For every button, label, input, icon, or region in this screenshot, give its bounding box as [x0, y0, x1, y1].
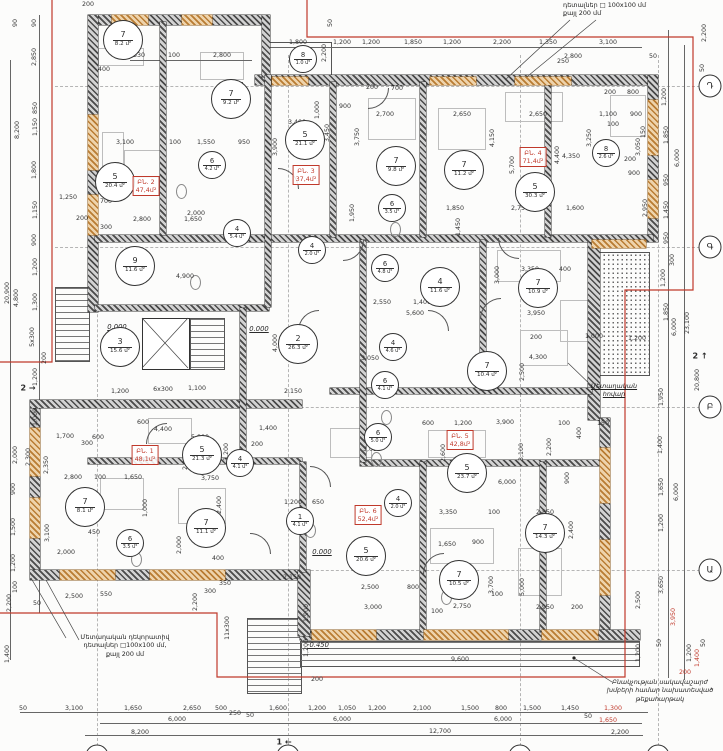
dimension-label: 800	[627, 90, 639, 96]
room-label: 520.4 մ²	[95, 162, 135, 202]
dimension-label: 900	[472, 540, 484, 546]
room-area: 9.2 մ²	[221, 99, 241, 107]
dimension-label: 850	[33, 102, 39, 114]
room-number: 7	[484, 362, 489, 371]
wall-brick-segment	[542, 630, 598, 640]
dimension-label: 1,500	[11, 518, 17, 536]
annotation-text: Բնակչության սակավաշարժխմբերի համար նախատ…	[598, 678, 722, 703]
dimension-label: 100	[168, 53, 180, 59]
room-number: 6	[383, 378, 387, 385]
dimension-label: 1,200	[661, 269, 667, 287]
dimension-label: 1,100	[599, 112, 617, 118]
room-area: 3.5 մ²	[383, 208, 402, 216]
room-label: 42.0 մ²	[298, 236, 326, 264]
dimension-label: 1,950	[350, 204, 356, 222]
room-label: 710.4 մ²	[467, 351, 507, 391]
dimension-label: 2,200	[611, 730, 629, 736]
room-area: 11.6 մ²	[123, 266, 147, 274]
dimension-label: 600	[422, 421, 434, 427]
leader-line	[505, 20, 570, 80]
dimension-label: 50	[246, 713, 254, 719]
room-number: 4	[238, 456, 242, 463]
dimension-label: 500	[215, 706, 227, 712]
dimension-label: 1,450	[664, 201, 670, 219]
dimension-label: 2,650	[453, 112, 471, 118]
dimension-label: 1,650	[184, 217, 202, 223]
dimension-label: 100	[94, 475, 106, 481]
dimension-label: 950	[664, 174, 670, 186]
dimension-label: 5,700	[510, 156, 516, 174]
apartment-label: ԲՆ. 542,8մ²	[447, 430, 474, 450]
dimension-label: 350	[219, 581, 231, 587]
room-label: 711.1 մ²	[186, 508, 226, 548]
dimension-label: 950	[664, 232, 670, 244]
dimension-label: 90	[13, 19, 19, 27]
dimension-label: 1,550	[197, 140, 215, 146]
room-number: 7	[461, 161, 466, 170]
dimension-label: 1,200	[454, 421, 472, 427]
room-number: 6	[376, 430, 380, 437]
wall-brick-segment	[150, 570, 225, 580]
dimension-label: 50	[33, 601, 41, 607]
dimension-label: 1,000	[33, 408, 39, 426]
dimension-label: 2,350	[44, 456, 50, 474]
dimension-label: 3,750	[201, 476, 219, 482]
room-label: 81.0 մ²	[289, 45, 317, 73]
dimension-label: 2,200	[493, 40, 511, 46]
dimension-label: 6,000	[168, 717, 186, 723]
room-label: 710.5 մ²	[439, 560, 479, 600]
dimension-label: 700	[391, 86, 403, 92]
dimension-label: 1,200	[333, 40, 351, 46]
room-label: 78.1 մ²	[65, 487, 105, 527]
room-number: 6	[210, 158, 214, 165]
dimension-label: 1,050	[338, 706, 356, 712]
dimension-label: 3,100	[45, 524, 51, 542]
dimension-label: 2,200	[547, 438, 553, 456]
dimension-label: 50	[657, 639, 663, 647]
dimension-label: 900	[339, 104, 351, 110]
dimension-label: 3,900	[273, 138, 279, 156]
dimension-label: 1,200	[11, 554, 17, 572]
dimension-label: 6,000	[675, 149, 681, 167]
room-number: 7	[82, 498, 87, 507]
room-label: 64.8 մ²	[371, 254, 399, 282]
room-area: 14.3 մ²	[533, 533, 557, 541]
apartment-label: ԲՆ. 148,1մ²	[132, 445, 159, 465]
dimension-label: 1,150	[33, 118, 39, 136]
leader-dot	[572, 656, 575, 659]
dimension-label: 1,200	[636, 644, 642, 662]
apartment-label: ԲՆ. 652,4մ²	[355, 505, 382, 525]
dimension-label: 3,000	[364, 605, 382, 611]
room-number: 8	[301, 52, 305, 59]
dimension-label: 50	[584, 714, 592, 720]
dimension-label: 100	[558, 421, 570, 427]
room-area: 8.2 մ²	[113, 40, 133, 48]
dimension-label: 1,950	[659, 388, 665, 406]
dimension-label: 11x300	[225, 616, 231, 640]
dimension-label: 1,000	[143, 499, 149, 517]
wall-brick-segment	[272, 77, 308, 85]
dimension-label: 1,850	[664, 303, 670, 321]
room-label: 520.6 մ²	[346, 536, 386, 576]
dimension-label: 1,850	[446, 206, 464, 212]
dimension-label: 950	[238, 140, 250, 146]
dimension-label: 1,500	[461, 706, 479, 712]
dimension-label: 1,400	[695, 649, 701, 667]
dimension-label: 8,200	[15, 121, 21, 139]
room-area: 10.5 մ²	[447, 580, 471, 588]
dimension-label: 3,000	[495, 266, 501, 284]
dimension-label: 2,200	[322, 44, 328, 62]
dimension-label: 50	[700, 64, 706, 72]
dimension-label: 2,800	[133, 217, 151, 223]
dimension-label: 1,650	[659, 478, 665, 496]
room-label: 315.6 մ²	[100, 327, 140, 367]
dimension-label: 4,300	[529, 355, 547, 361]
room-number: 6	[383, 261, 387, 268]
dimension-label: 650	[312, 500, 324, 506]
dimension-label: 6,000	[333, 717, 351, 723]
room-label: 42.0 մ²	[384, 489, 412, 517]
dimension-label: 3,100	[599, 40, 617, 46]
room-number: 7	[203, 519, 208, 528]
leader-line	[46, 580, 79, 640]
dimension-label: 4,350	[562, 154, 580, 160]
leader-line	[31, 578, 66, 638]
dimension-label: 100	[13, 581, 19, 593]
room-area: 2.0 մ²	[389, 503, 408, 511]
dimension-label: 2,400	[569, 521, 575, 539]
room-area: 5.4 մ²	[228, 233, 247, 241]
dimension-label: 2,800	[213, 53, 231, 59]
dimension-label: 2,800	[64, 475, 82, 481]
floor-plan-drawing: 2009090502,2001,8001,2001,2001,8501,2002…	[0, 0, 723, 751]
dimension-label: 8,200	[131, 730, 149, 736]
dimension-label: 50	[649, 54, 657, 60]
room-label: 44.6 մ²	[379, 333, 407, 361]
dimension-label: 100	[431, 609, 443, 615]
dimension-label: 550	[100, 592, 112, 598]
wall-brick-segment	[60, 570, 115, 580]
dimension-label: 2,650	[183, 706, 201, 712]
dimension-label: 1,800	[32, 161, 38, 179]
leader-line	[523, 20, 596, 80]
dimension-label: 4,150	[490, 129, 496, 147]
dimension-label: 2,000	[177, 536, 183, 554]
annotation-text: դետալներ □ 100x100 մմքայլ 200 մմ	[563, 1, 715, 18]
dimension-label: 900	[628, 171, 640, 177]
dimension-label: 2,950	[643, 199, 649, 217]
dimension-label: 2,300	[26, 448, 32, 466]
dimension-label: 600	[137, 420, 149, 426]
dimension-label: 100	[491, 592, 503, 598]
room-number: 4	[396, 496, 400, 503]
dimension-label: 2,700	[376, 112, 394, 118]
annotation-text: Մետաղական դեկորատիվդետալներ □100x100 մմ,…	[60, 633, 190, 658]
room-area: 4.1 մ²	[376, 385, 395, 393]
dimension-label: 1,150	[33, 201, 39, 219]
dimension-label: 2,550	[373, 300, 391, 306]
room-area: 21.3 մ²	[190, 455, 214, 463]
room-area: 20.6 մ²	[354, 556, 378, 564]
room-label: 64.1 մ²	[371, 371, 399, 399]
dimension-label: 3,750	[355, 128, 361, 146]
room-label: 711.2 մ²	[444, 150, 484, 190]
room-label: 710.9 մ²	[518, 268, 558, 308]
dimension-label: 6,000	[498, 480, 516, 486]
room-label: 911.6 մ²	[115, 246, 155, 286]
grid-axis-circle: Դ	[699, 75, 722, 98]
dimension-label: 400	[559, 267, 571, 273]
dimension-label: 1,650	[124, 475, 142, 481]
dimension-label: 50	[19, 706, 27, 712]
room-area: 8.1 մ²	[75, 507, 95, 515]
wall-brick-segment	[312, 630, 376, 640]
dimension-label: 1,200	[33, 258, 39, 276]
dimension-label: 450	[88, 530, 100, 536]
wall-brick-segment	[592, 240, 646, 248]
section-mark: 1 ←	[276, 738, 291, 747]
section-mark: 2 ↑	[692, 352, 707, 361]
dimension-label: 800	[495, 706, 507, 712]
room-number: 9	[132, 257, 137, 266]
grid-axis-circle: Ա	[699, 559, 722, 582]
dimension-label: 3,950	[527, 311, 545, 317]
dimension-label: 200	[366, 85, 378, 91]
dimension-label: 9,600	[451, 657, 469, 663]
dimension-label: 1,400	[259, 426, 277, 432]
dimension-label: 1,400	[5, 645, 11, 663]
dimension-label: 1,200	[628, 336, 646, 342]
site-boundary-red-line	[0, 0, 52, 362]
dimension-label: 600	[92, 435, 104, 441]
dimension-label: 1,000	[585, 334, 603, 340]
dimension-label: 1,200	[111, 389, 129, 395]
dimension-label: 1,200	[308, 706, 326, 712]
room-area: 4.6 մ²	[384, 347, 403, 355]
room-number: 5	[363, 547, 368, 556]
room-number: 6	[390, 201, 394, 208]
dimension-label: 2,200	[702, 24, 708, 42]
dimension-label: 1,650	[599, 718, 617, 724]
dimension-label: 1,650	[124, 706, 142, 712]
room-label: 78.2 մ²	[103, 20, 143, 60]
dimension-label: 5x300	[30, 327, 36, 347]
dimension-label: 1,200	[284, 500, 302, 506]
room-area: 10.4 մ²	[475, 371, 499, 379]
room-area: 26.3 մ²	[286, 344, 310, 352]
dimension-label: 6x300	[153, 387, 173, 393]
dimension-label: 4,400	[154, 427, 172, 433]
dimension-label: 90	[32, 19, 38, 27]
dimension-label: 200	[530, 335, 542, 341]
dimension-label: 2,200	[7, 594, 13, 612]
room-area: 11.1 մ²	[194, 528, 218, 536]
dimension-label: 6,000	[672, 318, 678, 336]
apartment-label: ԲՆ. 247,4մ²	[133, 176, 160, 196]
dimension-label: 200	[624, 157, 636, 163]
dimension-label: 2,950	[536, 605, 554, 611]
dimension-label: 800	[407, 585, 419, 591]
dimension-label: 2,500	[636, 591, 642, 609]
dimension-label: 4,900	[176, 274, 194, 280]
room-label: 411.6 մ²	[420, 267, 460, 307]
level-mark: 0.000	[249, 325, 268, 333]
dimension-label: 20,800	[695, 369, 701, 391]
room-area: 4.2 մ²	[203, 165, 222, 173]
dimension-label: 2,000	[57, 550, 75, 556]
dimension-label: 900	[32, 234, 38, 246]
dimension-label: 1,450	[456, 218, 462, 236]
room-area: 11.6 մ²	[428, 287, 452, 295]
room-number: 5	[464, 464, 469, 473]
dimension-label: 2,500	[361, 585, 379, 591]
room-number: 4	[391, 340, 395, 347]
room-number: 6	[128, 536, 132, 543]
dimension-label: 3,100	[519, 443, 525, 461]
grid-axis-circle: Բ	[699, 396, 722, 419]
dimension-label: 1,450	[561, 706, 579, 712]
room-area: 11.2 մ²	[452, 170, 476, 178]
room-label: 44.1 մ²	[226, 449, 254, 477]
dimension-label: 2,150	[283, 575, 301, 581]
wall-brick-segment	[182, 15, 212, 25]
dimension-label: 3,900	[496, 420, 514, 426]
dimension-label: 1,650	[438, 542, 456, 548]
room-area: 30.3 մ²	[523, 192, 547, 200]
room-number: 5	[112, 173, 117, 182]
dimension-label: 3,450	[325, 124, 331, 142]
room-number: 5	[199, 446, 204, 455]
dimension-label: 1,100	[188, 386, 206, 392]
room-label: 63.5 մ²	[116, 529, 144, 557]
dimension-label: 3,950	[671, 608, 677, 626]
dimension-label: 1,200	[443, 40, 461, 46]
room-area: 4.8 մ²	[376, 268, 395, 276]
dimension-label: 5,600	[406, 311, 424, 317]
dimension-label: 3,050	[636, 138, 642, 156]
grid-axis-circle: Գ	[699, 236, 722, 259]
room-area: 4.1 մ²	[231, 463, 250, 471]
dimension-label: 200	[604, 90, 616, 96]
room-label: 523.7 մ²	[447, 453, 487, 493]
dimension-label: 200	[679, 670, 691, 676]
dimension-label: 300	[81, 441, 93, 447]
dimension-label: 1,500	[523, 706, 541, 712]
dimension-label: 200	[82, 2, 94, 8]
room-area: 9.8 մ²	[386, 166, 406, 174]
dimension-label: 150	[641, 126, 647, 138]
dimension-label: 2,650	[529, 112, 547, 118]
dimension-label: 3,650	[659, 576, 665, 594]
room-area: 1.0 մ²	[294, 59, 313, 67]
room-label: 64.2 մ²	[198, 151, 226, 179]
dimension-label: 1,200	[659, 514, 665, 532]
dimension-label: 200	[42, 352, 48, 364]
room-label: 63.5 մ²	[378, 194, 406, 222]
dimension-label: 100	[488, 510, 500, 516]
level-mark: -0.450	[307, 641, 329, 649]
room-area: 5.0 մ²	[369, 437, 388, 445]
room-number: 7	[535, 279, 540, 288]
section-mark: 2 →	[20, 384, 35, 393]
dimension-label: 1,250	[59, 195, 77, 201]
dimension-label: 1,200	[362, 40, 380, 46]
dimension-label: 900	[630, 112, 642, 118]
dimension-label: 20,900	[5, 282, 11, 304]
dimension-label: 50	[328, 19, 334, 27]
dimension-label: 2,000	[13, 446, 19, 464]
room-label: 79.8 մ²	[376, 146, 416, 186]
dimension-label: 1,200	[687, 644, 693, 662]
room-number: 7	[120, 31, 125, 40]
dimension-label: 900	[565, 472, 571, 484]
dimension-label: 6,000	[494, 717, 512, 723]
level-mark: 0.000	[312, 548, 331, 556]
dimension-label: 23,100	[685, 312, 691, 334]
wall-brick-segment	[430, 77, 476, 85]
room-number: 7	[393, 157, 398, 166]
apartment-label: ԲՆ. 471,4մ²	[520, 147, 547, 167]
dimension-label: 3,100	[116, 140, 134, 146]
dimension-label: 1,400	[658, 436, 664, 454]
room-label: 714.3 մ²	[525, 513, 565, 553]
room-number: 2	[295, 335, 300, 344]
dimension-label: 1,700	[56, 434, 74, 440]
apartment-label: ԲՆ. 337,4մ²	[293, 165, 320, 185]
dimension-label: 1,300	[604, 706, 622, 712]
room-area: 20.4 մ²	[103, 182, 127, 190]
room-area: 23.7 մ²	[455, 473, 479, 481]
wall-brick-segment	[515, 77, 571, 85]
room-number: 4	[437, 278, 442, 287]
dimension-label: 4,400	[555, 146, 561, 164]
room-area: 2.6 մ²	[597, 153, 616, 161]
room-number: 3	[117, 338, 122, 347]
room-area: 3.5 մ²	[121, 543, 140, 551]
dimension-label: 400	[577, 427, 583, 439]
wall-brick-segment	[88, 195, 98, 235]
wall-brick-segment	[88, 115, 98, 170]
room-number: 4	[235, 226, 239, 233]
room-number: 1	[298, 514, 302, 521]
room-label: 14.1 մ²	[286, 507, 314, 535]
dimension-label: 150	[597, 421, 609, 427]
room-area: 4.1 մ²	[291, 521, 310, 529]
dimension-label: 4,800	[14, 289, 20, 307]
dimension-label: 2,200	[193, 593, 199, 611]
dimension-label: 2,100	[413, 706, 431, 712]
room-number: 4	[310, 243, 314, 250]
dimension-label: 2,150	[284, 389, 302, 395]
room-area: 2.0 մ²	[303, 250, 322, 258]
wall-brick-segment	[600, 448, 610, 503]
room-number: 8	[604, 146, 608, 153]
dimension-label: 250	[557, 59, 569, 65]
room-label: 226.3 մ²	[278, 324, 318, 364]
wall-brick-segment	[424, 630, 508, 640]
wall-brick-segment	[30, 498, 40, 538]
room-number: 7	[228, 90, 233, 99]
dimension-label: 3,250	[587, 129, 593, 147]
dimension-label: 100	[607, 122, 619, 128]
room-number: 7	[456, 571, 461, 580]
dimension-label: 1,350	[539, 40, 557, 46]
room-label: 45.4 մ²	[223, 219, 251, 247]
room-number: 5	[302, 131, 307, 140]
